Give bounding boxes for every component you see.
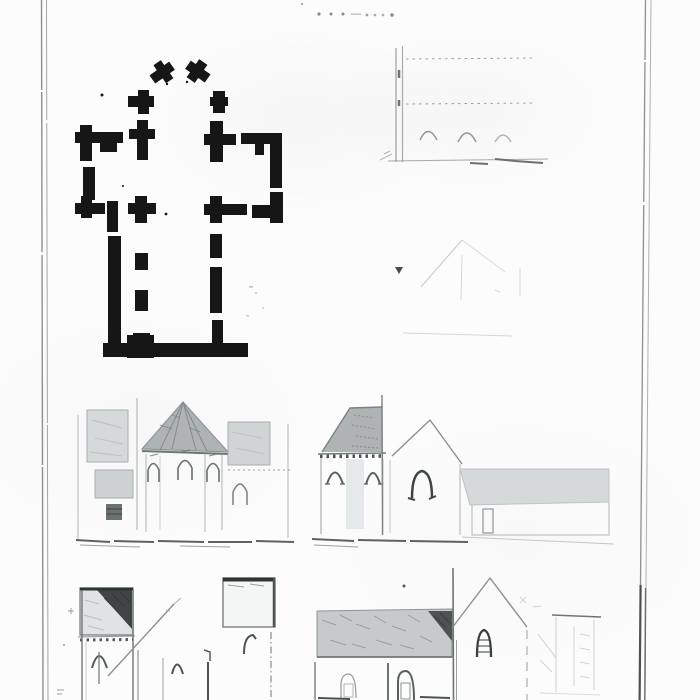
gable-end <box>452 578 527 700</box>
stringcourse-line <box>406 103 534 104</box>
ground-scribble <box>312 539 468 547</box>
right-roof-block <box>228 422 270 465</box>
nave-wall-lines <box>138 650 210 700</box>
ground-scribble <box>76 540 294 547</box>
cornice-line <box>78 636 135 637</box>
tower-and-gable-elevation <box>312 395 468 547</box>
lower-wall <box>318 663 450 700</box>
plate-border-right <box>640 0 652 700</box>
bottom-left-elevation <box>57 578 275 700</box>
faint-gable <box>395 240 520 336</box>
tower-walls <box>321 459 383 534</box>
wallplate-line <box>406 58 534 59</box>
eaves-dentils <box>320 456 385 457</box>
dark-speck <box>395 267 403 274</box>
outbuilding-sketch <box>460 469 614 544</box>
gable-window <box>477 630 491 657</box>
corner-sketch <box>520 597 601 695</box>
gable-outline <box>452 578 527 628</box>
arched-window <box>233 484 247 505</box>
stray-marks <box>57 608 74 694</box>
arcade-arches <box>420 132 511 143</box>
stray-marks <box>520 597 541 607</box>
eaves-line <box>552 615 601 617</box>
plate-border-dark-segment <box>640 585 641 700</box>
lower-roof-block <box>95 470 133 498</box>
plate-border-left <box>42 0 49 700</box>
apse-buttress-left <box>146 57 178 89</box>
choir-pier-right <box>210 91 228 113</box>
plate-canvas <box>0 0 700 700</box>
illegible-caption-marks <box>301 3 394 17</box>
east-end-elevation <box>76 398 294 547</box>
ladder-marks <box>580 634 590 678</box>
choir-pier-left <box>128 90 154 114</box>
cornice-dentils <box>80 640 133 641</box>
right-chapel-walls <box>241 133 283 223</box>
gable-window <box>412 471 432 498</box>
long-roof <box>460 469 609 505</box>
eaves-line <box>318 453 386 454</box>
second-tower-outline <box>223 578 275 627</box>
apse-roof <box>142 402 228 454</box>
corner-line <box>382 395 383 535</box>
door <box>483 509 493 533</box>
speck <box>403 585 406 588</box>
floor-plan <box>75 56 283 358</box>
tower-window <box>92 652 107 684</box>
bottom-right-elevation <box>315 568 527 700</box>
apse-windows <box>148 450 219 482</box>
gable-outline <box>392 420 462 464</box>
crossing-pier-right <box>204 121 236 162</box>
long-shaded-roof <box>317 609 452 657</box>
arched-windows <box>172 635 256 674</box>
gable-building <box>390 420 462 535</box>
plate-page <box>0 0 700 700</box>
tall-corner-line <box>453 568 454 700</box>
arcade-elevation <box>380 46 548 164</box>
ground-dashes <box>318 697 450 699</box>
nave-piers-walls <box>103 196 248 358</box>
tower-roof-front-face <box>322 407 382 452</box>
crossing-pier-left <box>129 120 155 160</box>
ground-line <box>403 333 512 336</box>
pencil-specks <box>246 286 264 317</box>
arched-door-2 <box>341 674 356 698</box>
arched-door <box>398 671 414 700</box>
diagonal-strokes <box>538 634 556 672</box>
louver-window <box>106 504 122 520</box>
ground-line <box>462 537 614 544</box>
